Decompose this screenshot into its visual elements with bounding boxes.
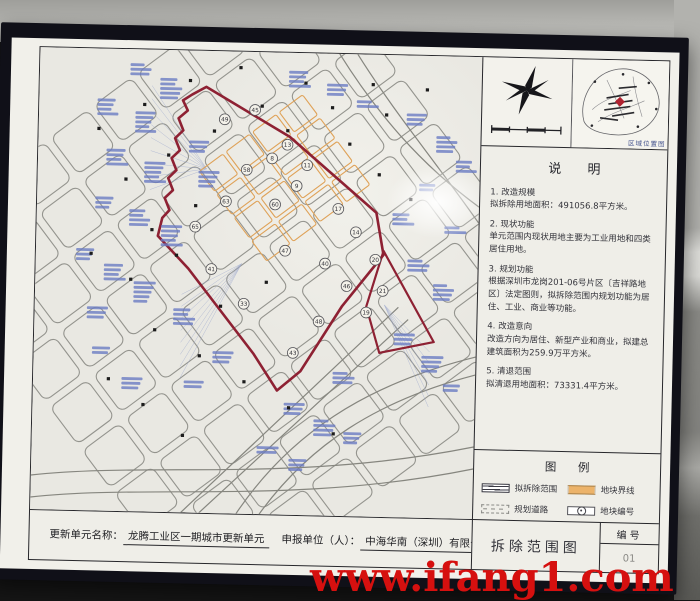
north-arrow-scale-box [481,57,573,147]
circle-icon [577,506,586,515]
legend-label: 规划道路 [514,503,548,516]
svg-text:49: 49 [221,117,229,123]
plan-sheet: 4945131158817146360920211965414740464833… [28,46,670,574]
legend-label: 地块编号 [600,505,634,518]
note-item-4: 4. 改造意向 改造方向为居住、新型产业和商业，拟建总建筑面积为259.9万平方… [487,321,655,363]
sheet-number-label: 编号 [600,523,658,545]
parcel-line-symbol [568,485,596,495]
svg-text:48: 48 [315,320,323,326]
svg-text:45: 45 [251,108,259,114]
demolition-boundary [154,86,387,393]
svg-text:14: 14 [352,230,360,236]
demolition-scope-map: 4945131158817146360920211965414740464833… [30,47,483,519]
planned-road-symbol [481,504,509,514]
location-minimap: 区域位置图 [571,59,669,149]
unit-name-label: 更新单元名称： [49,526,123,543]
note-body: 单元范围内现状用地主要为工业用地和四类居住用地。 [489,231,657,260]
legend-grid: 拟拆除范围 地块界线 规划道路 地块编号 [481,481,652,518]
applicant-value: 中海华南（深圳）有限公司 [360,533,473,553]
svg-text:11: 11 [303,163,311,169]
svg-text:33: 33 [240,302,248,308]
svg-text:65: 65 [191,225,199,231]
info-panel: 区域位置图 说 明 1. 改造规模 拟拆除用地面积：491056.8平方米。 2… [473,57,669,523]
notes-title: 说 明 [491,156,658,179]
svg-text:47: 47 [281,249,289,255]
note-item-5: 5. 清退范围 拟清退用地面积：73331.4平方米。 [486,366,654,395]
svg-text:63: 63 [222,199,230,205]
svg-text:40: 40 [321,262,329,268]
note-item-3: 3. 规划功能 根据深圳市龙岗201-06号片区〔吉祥路地区〕法定图则，拟拆除范… [488,263,656,317]
legend-section: 图 例 拟拆除范围 地块界线 规划道路 [473,449,661,523]
note-body: 改造方向为居住、新型产业和商业，拟建总建筑面积为259.9万平方米。 [487,333,655,362]
svg-text:8: 8 [270,156,274,162]
svg-text:58: 58 [243,168,251,174]
legend-label: 拟拆除范围 [515,482,558,495]
svg-text:60: 60 [271,202,279,208]
legend-item-planned-road: 规划道路 [481,502,565,516]
minimap-row: 区域位置图 [481,57,669,150]
photo-glare [386,165,483,239]
map-canvas: 4945131158817146360920211965414740464833… [30,47,482,519]
svg-text:21: 21 [379,289,387,295]
unit-name-field: 更新单元名称： 龙腾工业区一期城市更新单元 [49,526,269,548]
parcel-number-symbol [567,506,595,516]
board-white-mat: 4945131158817146360920211965414740464833… [0,37,680,583]
framed-map-board: 4945131158817146360920211965414740464833… [0,22,689,594]
demolish-boundary-symbol [482,483,510,493]
notes-section: 说 明 1. 改造规模 拟拆除用地面积：491056.8平方米。 2. 现状功能… [475,146,668,453]
legend-label: 地块界线 [600,484,634,497]
note-body: 拟清退用地面积：73331.4平方米。 [486,378,653,395]
location-map-caption: 区域位置图 [628,137,666,148]
note-body: 根据深圳市龙岗201-06号片区〔吉祥路地区〕法定图则，拟拆除范围内规划功能为居… [488,276,656,318]
compass-icon [481,57,572,147]
applicant-label: 申报单位（人）： [281,532,360,549]
note-body: 拟拆除用地面积：491056.8平方米。 [490,199,657,216]
note-item-2: 2. 现状功能 单元范围内现状用地主要为工业用地和四类居住用地。 [489,218,657,260]
svg-text:13: 13 [284,143,292,149]
svg-text:19: 19 [362,311,370,317]
svg-text:17: 17 [335,207,343,213]
parcel-numbers: 4945131158817146360920211965414740464833… [187,103,392,360]
legend-item-parcel-number: 地块编号 [567,504,651,518]
legend-item-parcel-line: 地块界线 [568,483,652,497]
legend-title: 图 例 [482,457,652,477]
watermark-text: www.ifang1.com [310,554,674,601]
svg-text:9: 9 [295,184,299,190]
svg-text:20: 20 [372,258,380,264]
note-item-1: 1. 改造规模 拟拆除用地面积：491056.8平方米。 [490,186,658,215]
legend-item-demolish-boundary: 拟拆除范围 [482,481,566,495]
svg-text:41: 41 [208,267,216,273]
location-map-icon [571,59,669,149]
applicant-field: 申报单位（人）： 中海华南（深圳）有限公司 [281,532,473,554]
svg-text:43: 43 [289,351,297,357]
unit-name-value: 龙腾工业区一期城市更新单元 [123,528,270,548]
svg-text:46: 46 [343,284,351,290]
